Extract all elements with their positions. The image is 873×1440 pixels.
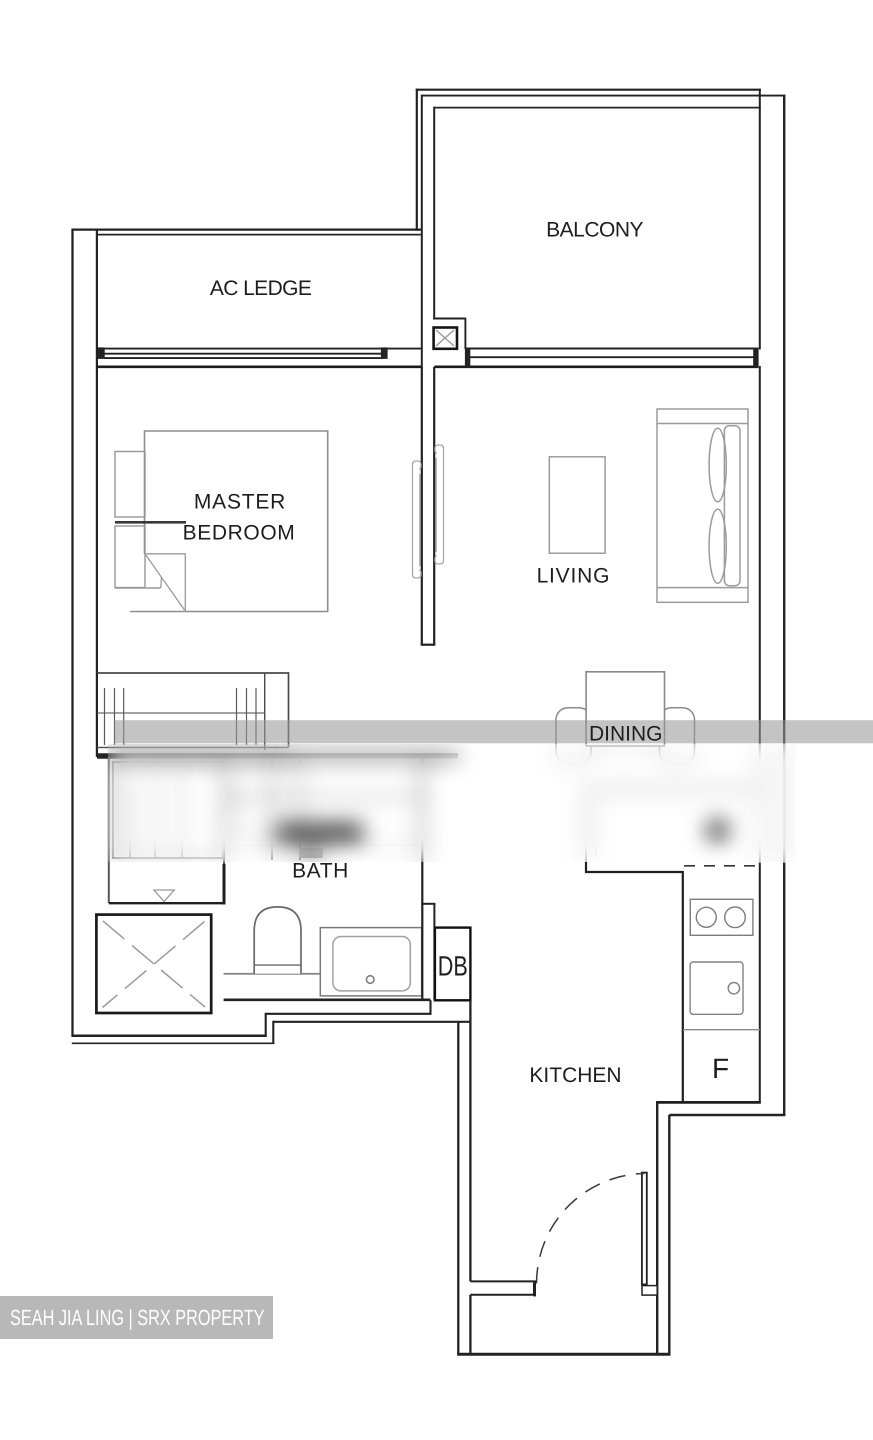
svg-text:BALCONY: BALCONY [546,219,643,242]
svg-text:DINING: DINING [589,722,663,745]
svg-text:MASTER: MASTER [194,491,286,514]
svg-text:AC LEDGE: AC LEDGE [210,277,312,300]
svg-text:KITCHEN: KITCHEN [529,1064,621,1087]
svg-text:F: F [712,1053,729,1084]
svg-text:BEDROOM: BEDROOM [183,522,296,545]
svg-text:BATH: BATH [292,860,349,883]
svg-text:DB: DB [438,951,468,982]
svg-text:LIVING: LIVING [537,565,611,588]
